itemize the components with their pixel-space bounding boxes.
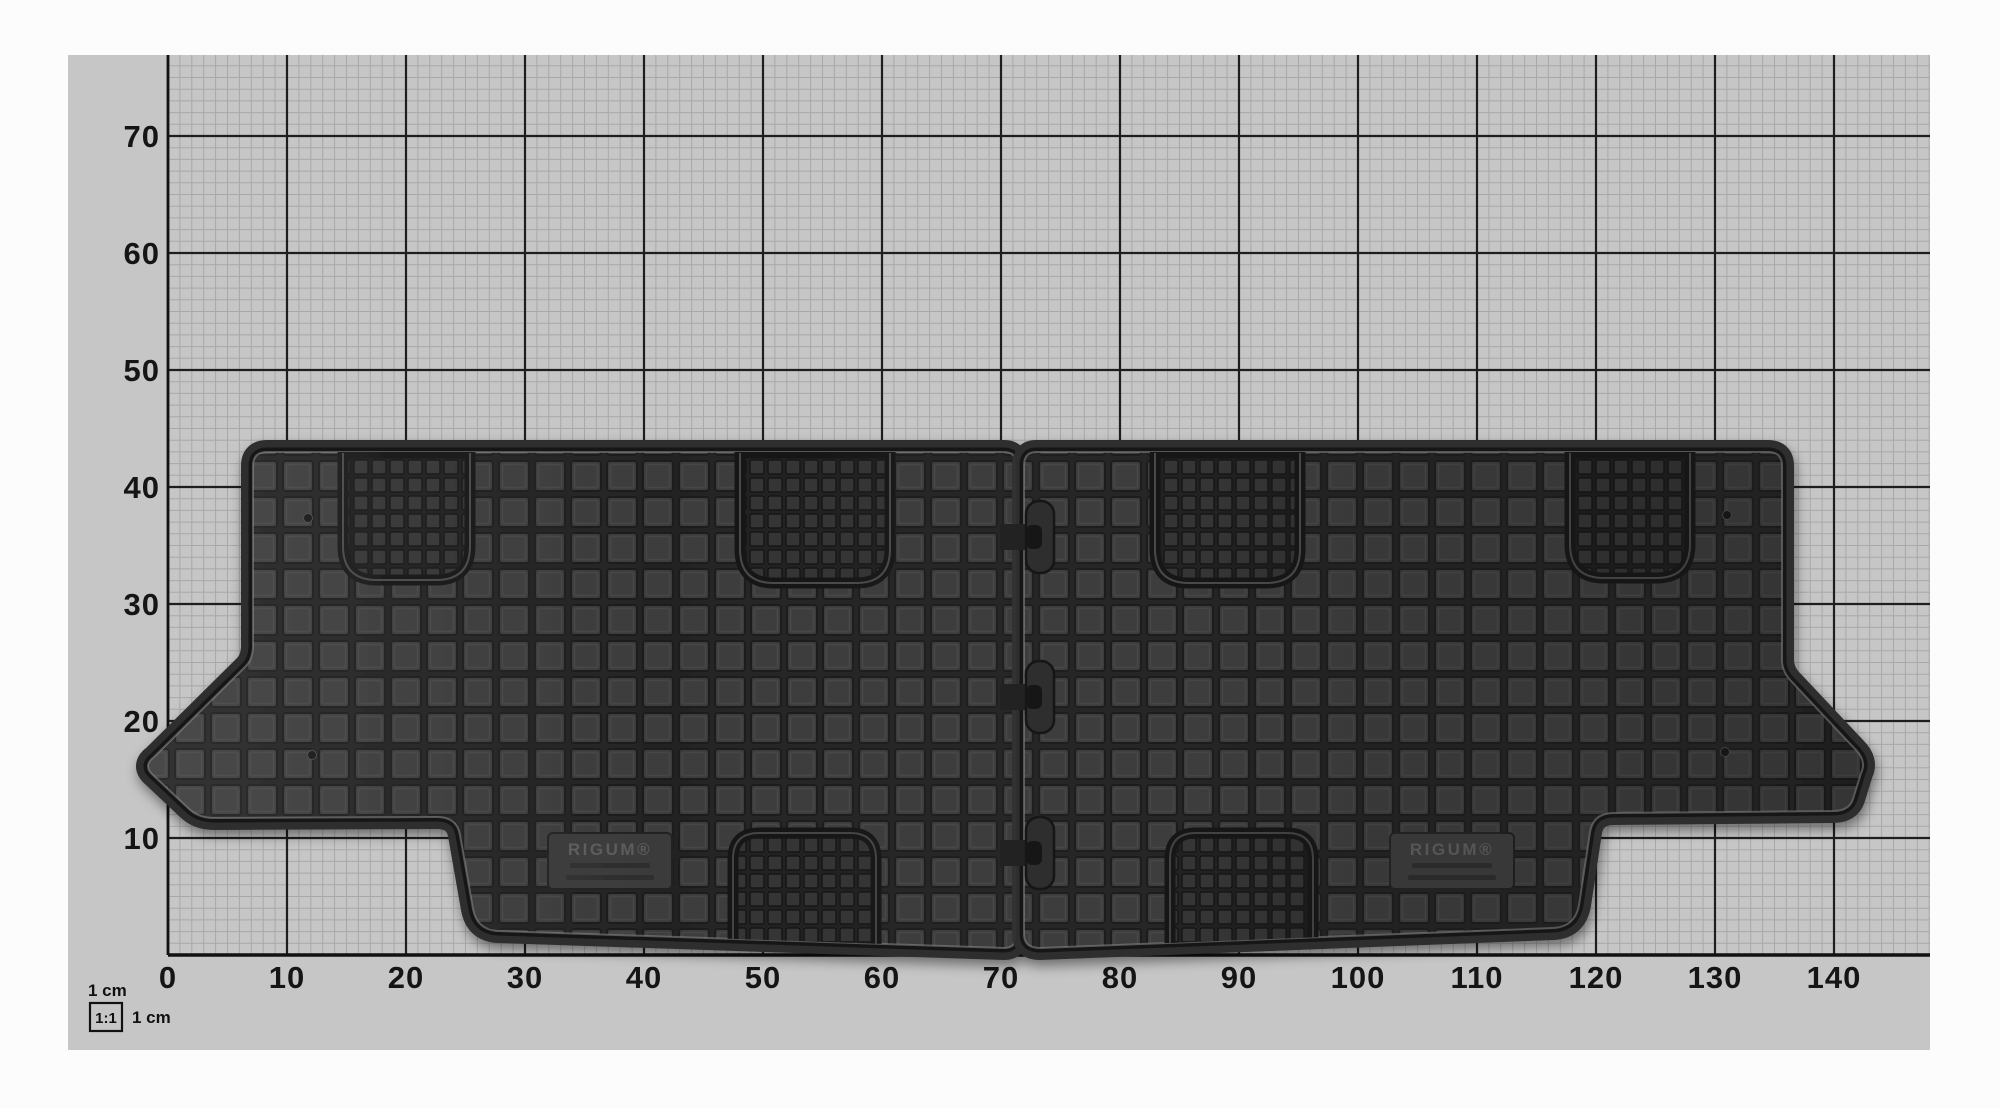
- y-axis-label: 10: [124, 821, 160, 856]
- x-axis-label: 40: [626, 960, 662, 995]
- y-axis-label: 40: [124, 470, 160, 505]
- x-axis-label: 120: [1569, 960, 1624, 995]
- x-axis-label: 100: [1331, 960, 1386, 995]
- scale-ratio-label: 1:1: [95, 1010, 117, 1027]
- y-axis-label: 50: [124, 353, 160, 388]
- x-axis-label: 90: [1221, 960, 1257, 995]
- x-axis-label: 0: [159, 960, 177, 995]
- y-axis-label: 60: [124, 236, 160, 271]
- scale-side-label: 1 cm: [132, 1008, 171, 1027]
- scene: 0102030405060708090100110120130140 70605…: [0, 0, 2000, 1108]
- x-axis-label: 110: [1450, 960, 1503, 995]
- x-axis-label: 10: [269, 960, 305, 995]
- x-axis-label: 30: [507, 960, 543, 995]
- x-axis-labels: 0102030405060708090100110120130140: [159, 960, 1861, 995]
- product-photo-page: 0102030405060708090100110120130140 70605…: [0, 0, 2000, 1108]
- x-axis-label: 130: [1688, 960, 1743, 995]
- y-axis-label: 20: [124, 704, 160, 739]
- y-axis-label: 30: [124, 587, 160, 622]
- x-axis-label: 20: [388, 960, 424, 995]
- x-axis-label: 140: [1807, 960, 1862, 995]
- scale-1cm-label: 1 cm: [88, 981, 127, 1000]
- x-axis-label: 70: [983, 960, 1019, 995]
- y-axis-label: 70: [124, 119, 160, 154]
- x-axis-label: 60: [864, 960, 900, 995]
- x-axis-label: 50: [745, 960, 781, 995]
- x-axis-label: 80: [1102, 960, 1138, 995]
